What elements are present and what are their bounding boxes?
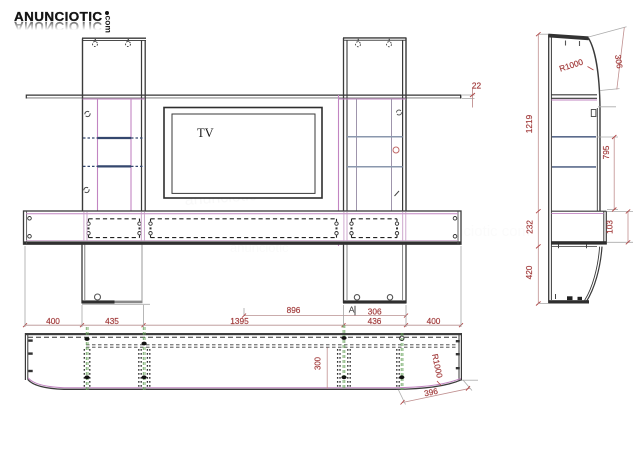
svg-text:400: 400 — [427, 316, 441, 326]
svg-text:A: A — [349, 305, 355, 315]
svg-text:com: com — [104, 16, 114, 34]
svg-text:400: 400 — [46, 316, 60, 326]
svg-text:232: 232 — [524, 220, 534, 234]
svg-text:420: 420 — [524, 265, 534, 279]
svg-text:436: 436 — [368, 316, 382, 326]
svg-text:896: 896 — [287, 305, 301, 315]
svg-text:396: 396 — [423, 386, 439, 399]
svg-text:1395: 1395 — [230, 316, 249, 326]
svg-text:103: 103 — [605, 220, 615, 234]
svg-text:R1000: R1000 — [558, 56, 585, 73]
svg-text:22: 22 — [472, 81, 482, 91]
svg-text:306: 306 — [613, 54, 625, 69]
svg-text:435: 435 — [105, 316, 119, 326]
svg-text:TV: TV — [197, 126, 214, 140]
svg-text:R1000: R1000 — [430, 353, 445, 379]
svg-text:300: 300 — [314, 356, 323, 370]
svg-text:306: 306 — [368, 306, 382, 316]
svg-text:795: 795 — [601, 145, 611, 159]
svg-text:1219: 1219 — [524, 114, 534, 133]
